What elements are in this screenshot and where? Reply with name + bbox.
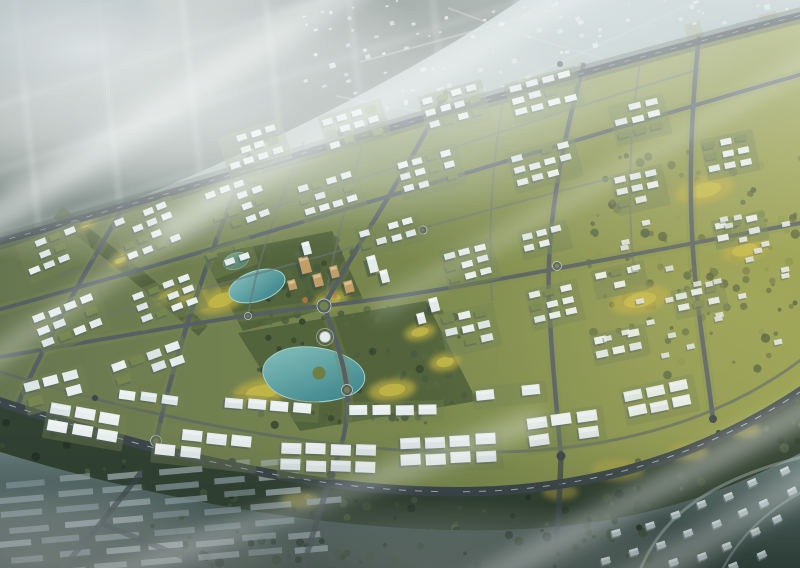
masterplan-scene (0, 0, 800, 568)
atmosphere (0, 0, 800, 568)
aerial-masterplan-rendering (0, 0, 800, 568)
